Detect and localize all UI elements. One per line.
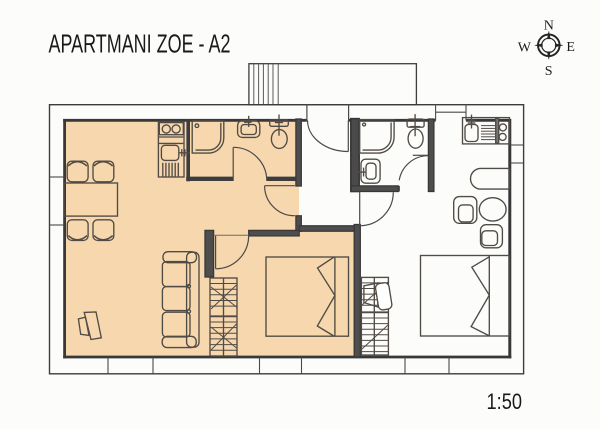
- svg-text:W: W: [518, 41, 532, 56]
- svg-text:S: S: [545, 64, 553, 79]
- svg-text:1:50: 1:50: [487, 389, 523, 414]
- svg-text:APARTMANI ZOE - A2: APARTMANI ZOE - A2: [49, 28, 231, 58]
- svg-text:E: E: [566, 40, 575, 55]
- svg-text:N: N: [544, 19, 554, 34]
